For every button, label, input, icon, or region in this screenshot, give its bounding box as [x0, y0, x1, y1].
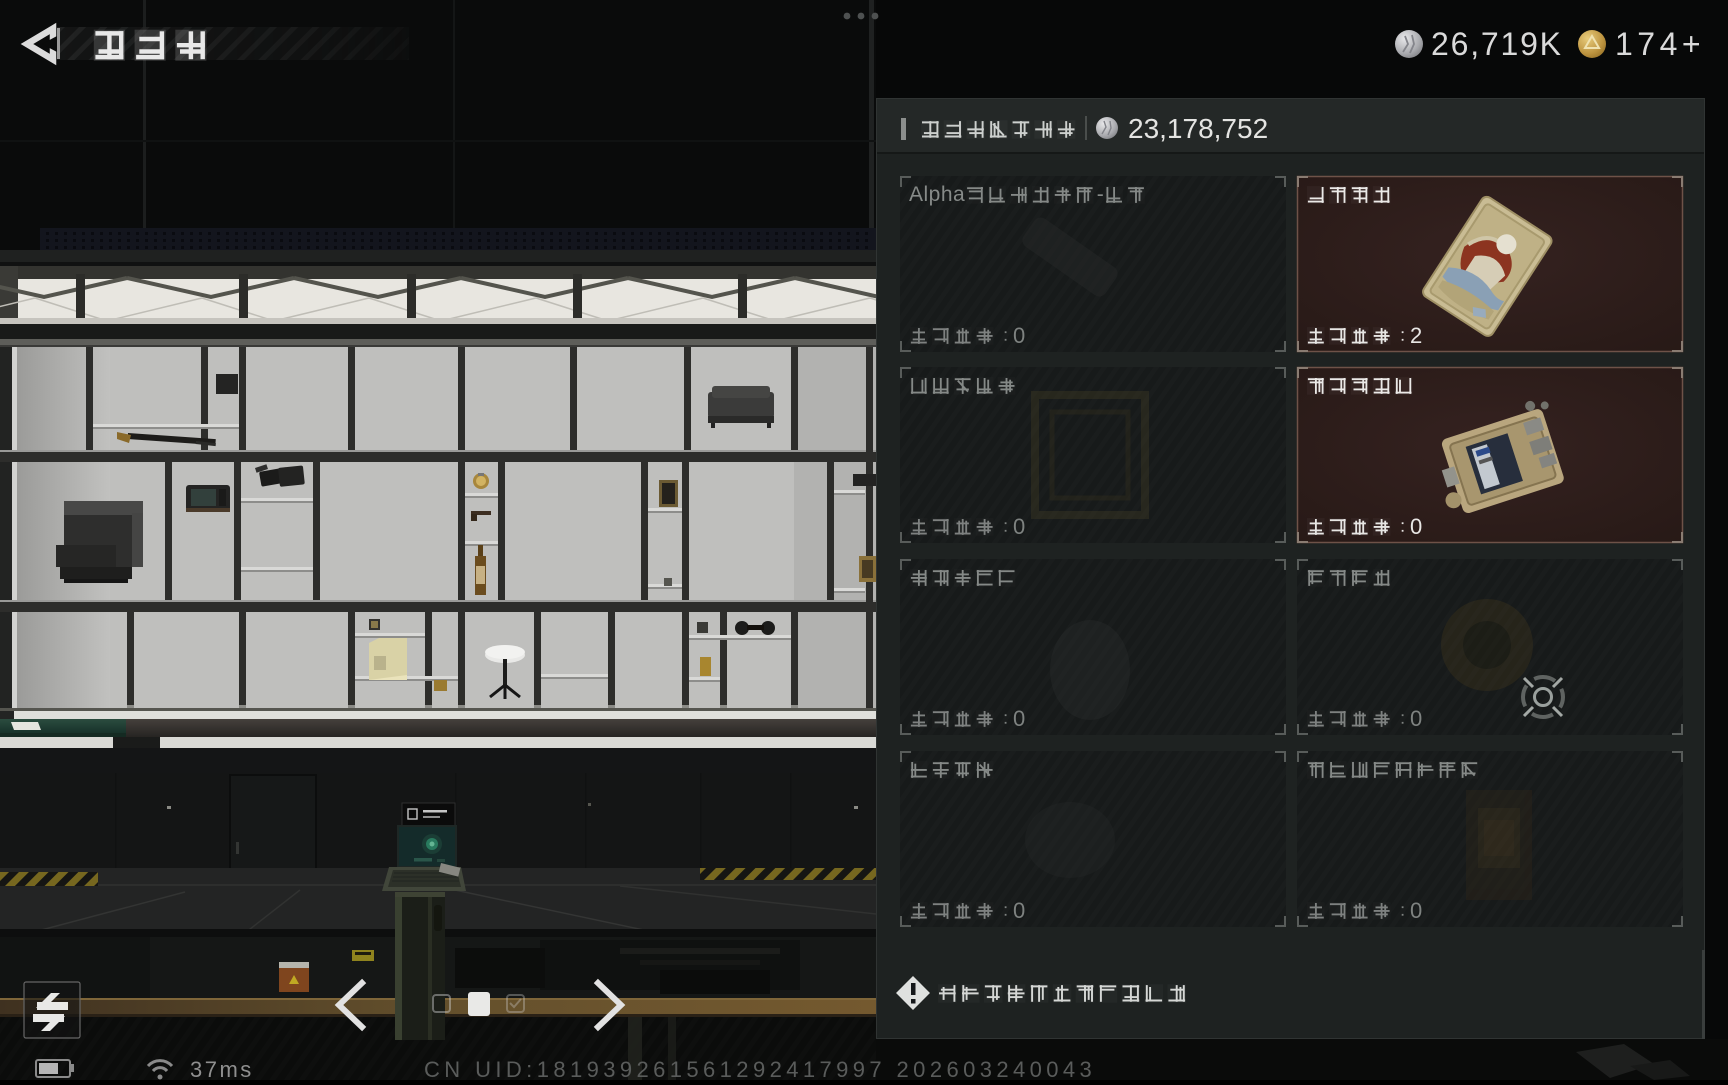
svg-text:0: 0 — [1410, 514, 1422, 539]
svg-text:0: 0 — [1013, 898, 1025, 923]
svg-text:0: 0 — [1410, 898, 1422, 923]
svg-text:Alpha: Alpha — [909, 183, 965, 206]
svg-text:23,178,752: 23,178,752 — [1128, 113, 1268, 144]
svg-text:0: 0 — [1013, 514, 1025, 539]
svg-text:0: 0 — [1410, 706, 1422, 731]
svg-text:CN UID:181939261561292417997 2: CN UID:181939261561292417997 20260324004… — [424, 1057, 1096, 1080]
svg-text:174+: 174+ — [1615, 26, 1705, 62]
svg-text:2: 2 — [1410, 323, 1422, 348]
svg-text:37ms: 37ms — [190, 1057, 254, 1080]
svg-text:26,719K: 26,719K — [1431, 26, 1563, 62]
svg-text:0: 0 — [1013, 323, 1025, 348]
svg-text:-: - — [1097, 183, 1105, 206]
svg-text:0: 0 — [1013, 706, 1025, 731]
